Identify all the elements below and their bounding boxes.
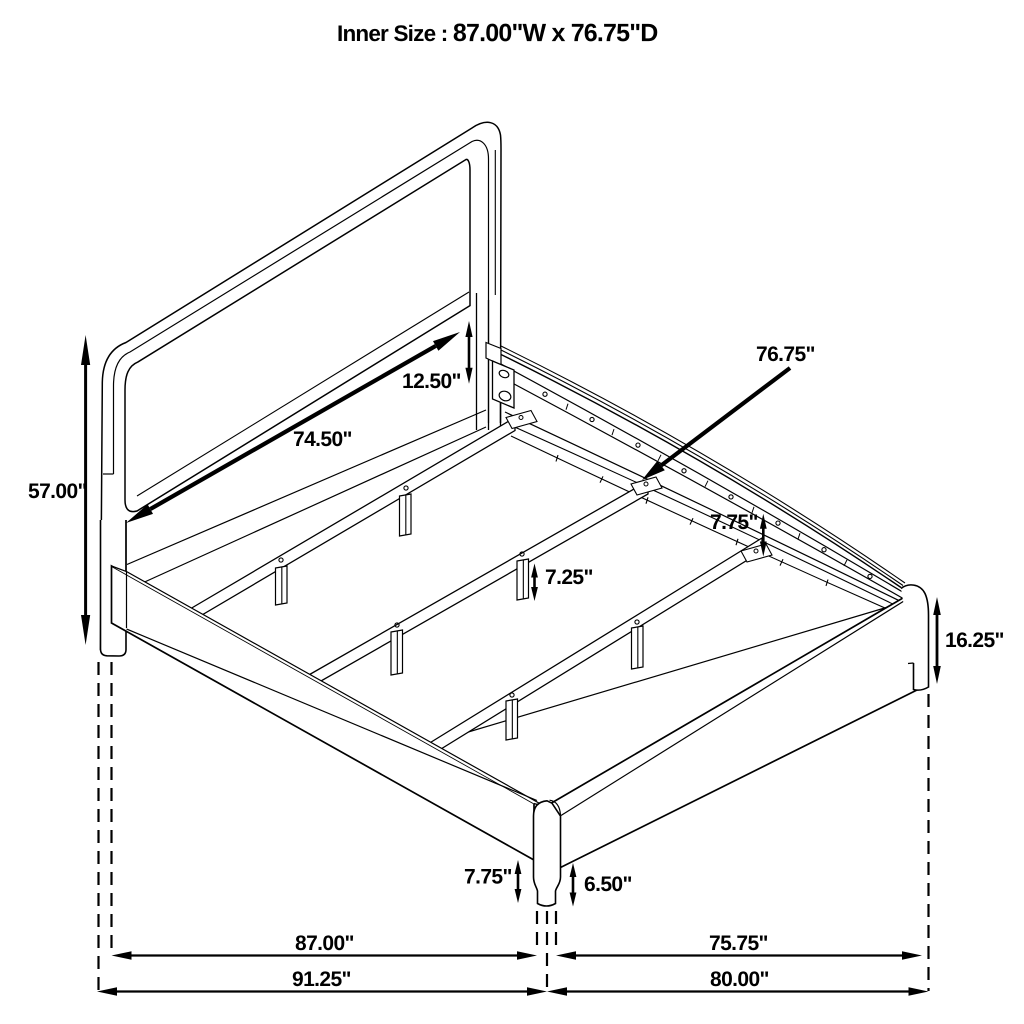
svg-text:80.00": 80.00" bbox=[710, 968, 769, 991]
svg-text:74.50": 74.50" bbox=[293, 428, 352, 451]
svg-text:6.50": 6.50" bbox=[584, 873, 632, 896]
svg-text:91.25": 91.25" bbox=[292, 968, 351, 991]
svg-text:Inner Size : 87.00"W x 76.75"D: Inner Size : 87.00"W x 76.75"D bbox=[337, 19, 658, 47]
svg-text:7.25": 7.25" bbox=[545, 566, 593, 589]
svg-text:57.00": 57.00" bbox=[28, 480, 87, 503]
svg-text:7.75": 7.75" bbox=[710, 511, 758, 534]
svg-text:7.75": 7.75" bbox=[464, 866, 512, 889]
svg-text:87.00": 87.00" bbox=[295, 932, 354, 955]
svg-text:12.50": 12.50" bbox=[402, 370, 461, 393]
svg-text:75.75": 75.75" bbox=[709, 932, 768, 955]
svg-text:76.75": 76.75" bbox=[756, 343, 815, 366]
svg-text:16.25": 16.25" bbox=[945, 629, 1004, 652]
